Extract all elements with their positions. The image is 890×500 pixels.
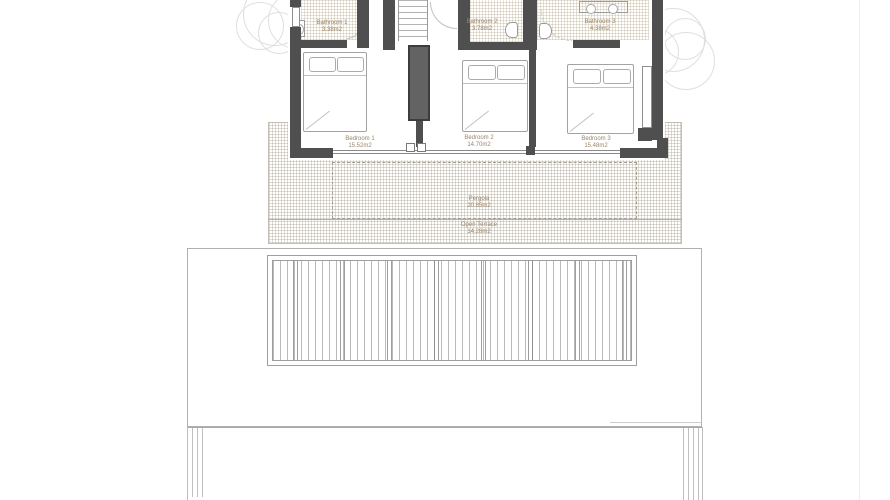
- door-post: [417, 143, 426, 152]
- room-label-bathroom-1: Bathroom 1 3.38m2: [306, 20, 358, 34]
- door-post: [526, 146, 535, 155]
- window-right: [642, 66, 652, 128]
- plot-line-left: [187, 427, 188, 500]
- terrace-step-line: [610, 422, 702, 423]
- deck-striped-area: [267, 255, 637, 366]
- steps-line: [688, 428, 689, 500]
- plot-line-right: [702, 427, 703, 500]
- room-label-open-terrace: Open Terrace 14.28m2: [434, 222, 524, 236]
- room-label-bathroom-2: Bathroom 2 3.78m2: [456, 19, 508, 33]
- plot-line-top: [187, 427, 703, 428]
- steps-line: [693, 428, 694, 500]
- wall-segment: [529, 50, 536, 147]
- sheet-edge-line: [859, 0, 860, 500]
- wall-segment: [290, 148, 333, 158]
- bed-bedroom3: [567, 64, 634, 134]
- room-label-pergola: Pergola 20.85m2: [444, 196, 514, 210]
- tree-sketch: [664, 18, 706, 60]
- terrace-separator-line: [268, 219, 682, 220]
- pergola-outline: [332, 162, 637, 219]
- bed-bedroom1: [303, 52, 367, 132]
- floor-plan-canvas: Bathroom 1 3.38m2 Bathroom 2 3.78m2 Bath…: [0, 0, 890, 500]
- bed-bedroom2: [462, 60, 528, 132]
- steps-line: [197, 428, 198, 497]
- window-left: [292, 7, 300, 27]
- steps-line: [698, 428, 699, 500]
- steps-line: [192, 428, 193, 497]
- vanity-bathroom3: [579, 1, 628, 13]
- room-label-bedroom-2: Bedroom 2 14.70m2: [453, 135, 505, 149]
- room-label-bedroom-3: Bedroom 3 15.48m2: [570, 136, 622, 150]
- wall-segment: [638, 128, 652, 141]
- room-label-bedroom-1: Bedroom 1 15.52m2: [334, 136, 386, 150]
- wall-segment: [458, 42, 523, 50]
- wall-segment: [523, 0, 537, 50]
- steps-line: [683, 428, 684, 500]
- door-post: [406, 143, 415, 152]
- steps-line: [202, 428, 203, 497]
- wall-segment: [383, 0, 395, 50]
- wall-segment: [620, 148, 668, 158]
- wardrobe-column: [408, 45, 430, 121]
- glass-doors: [333, 150, 620, 154]
- wall-segment: [652, 0, 663, 140]
- wall-segment: [573, 40, 620, 48]
- toilet-bathroom3: [539, 23, 552, 39]
- room-label-bathroom-3: Bathroom 3 4.38m2: [574, 19, 626, 33]
- stairs: [398, 0, 428, 41]
- wall-segment: [290, 40, 347, 48]
- wall-segment: [357, 0, 369, 48]
- deck-planks: [272, 260, 632, 361]
- wall-segment: [290, 0, 301, 7]
